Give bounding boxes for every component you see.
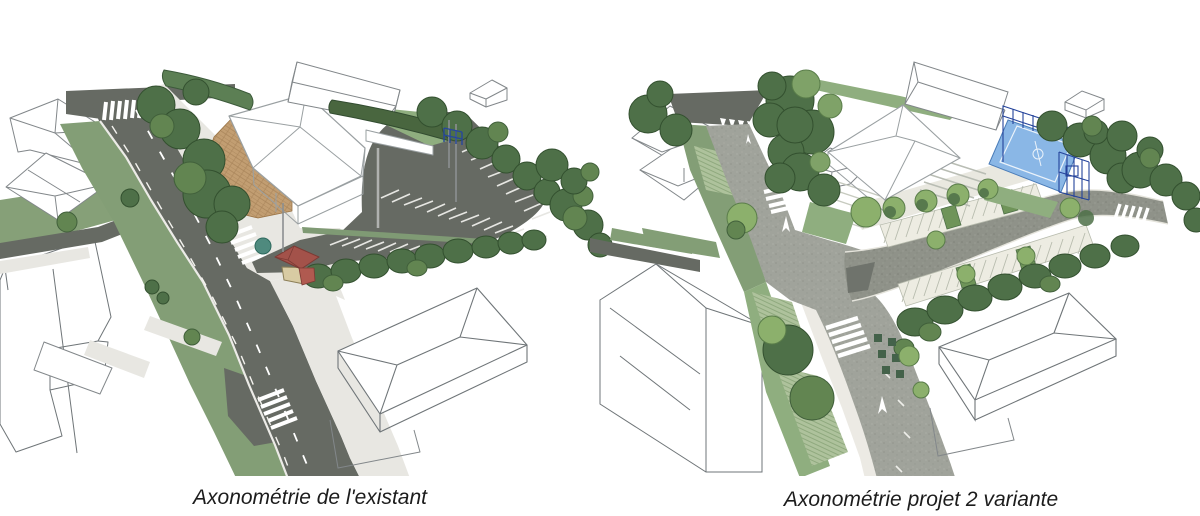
svg-text:Axonométrie de l'existant: Axonométrie de l'existant	[191, 486, 428, 509]
svg-text:Axonométrie projet 2 variante: Axonométrie projet 2 variante	[782, 488, 1058, 511]
